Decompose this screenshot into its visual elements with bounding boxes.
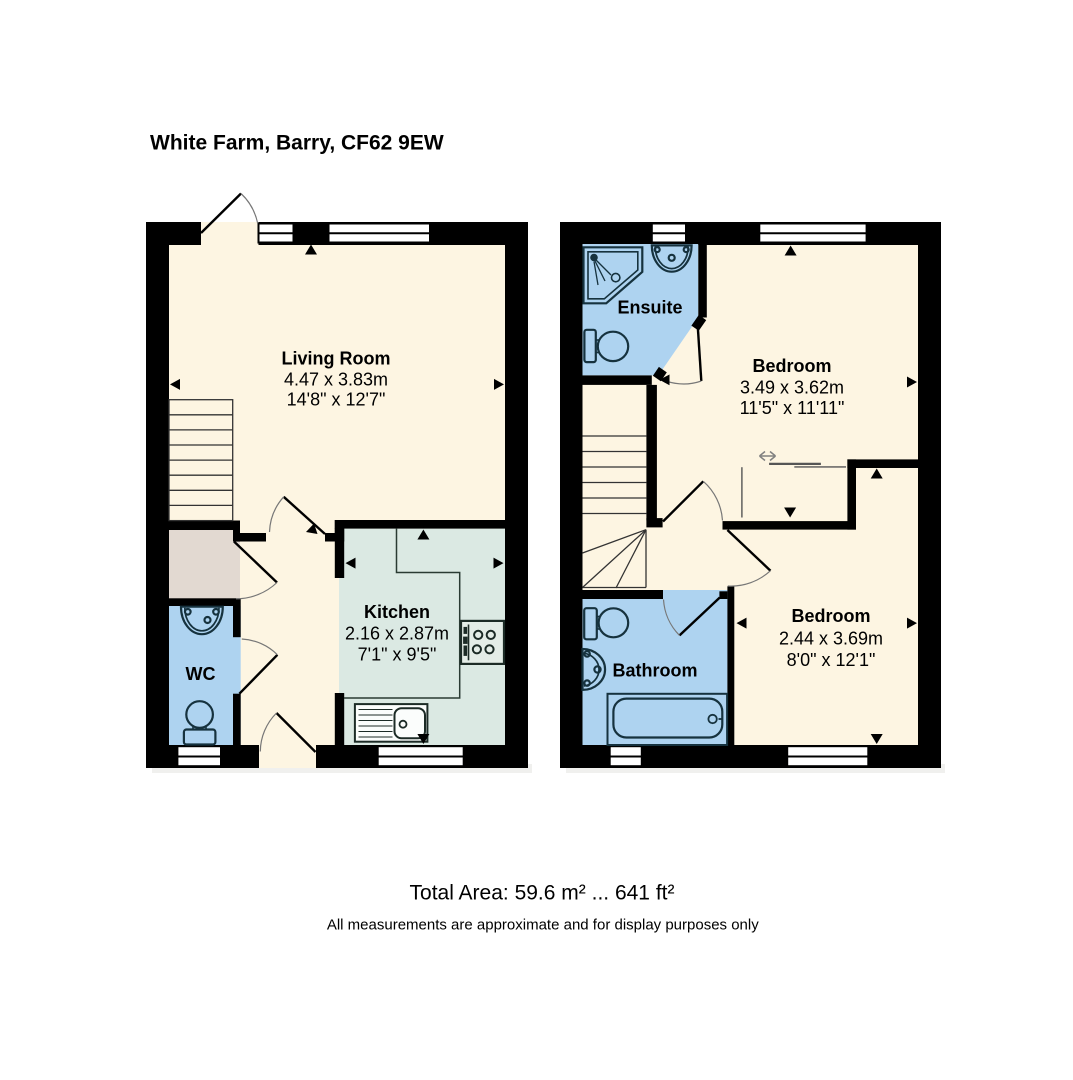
svg-text:4.47 x 3.83m: 4.47 x 3.83m [284,369,388,389]
svg-text:14'8" x 12'7": 14'8" x 12'7" [287,389,386,409]
svg-text:WC: WC [186,664,216,684]
svg-text:Bathroom: Bathroom [613,660,698,680]
svg-text:All measurements are approxima: All measurements are approximate and for… [327,917,759,934]
svg-text:Living Room: Living Room [282,349,391,369]
svg-text:2.16 x 2.87m: 2.16 x 2.87m [345,624,449,644]
svg-text:Ensuite: Ensuite [617,298,682,318]
svg-text:8'0" x 12'1": 8'0" x 12'1" [787,650,876,670]
svg-text:Bedroom: Bedroom [791,606,870,626]
svg-text:White Farm, Barry, CF62 9EW: White Farm, Barry, CF62 9EW [150,132,444,155]
svg-text:11'5" x 11'11": 11'5" x 11'11" [740,398,845,418]
svg-text:Bedroom: Bedroom [752,356,831,376]
svg-text:Total Area: 59.6 m² ... 641 ft: Total Area: 59.6 m² ... 641 ft² [410,882,675,905]
svg-text:Kitchen: Kitchen [364,602,430,622]
svg-text:3.49 x 3.62m: 3.49 x 3.62m [740,378,844,398]
svg-text:2.44 x 3.69m: 2.44 x 3.69m [779,628,883,648]
svg-text:7'1" x 9'5": 7'1" x 9'5" [358,645,437,665]
